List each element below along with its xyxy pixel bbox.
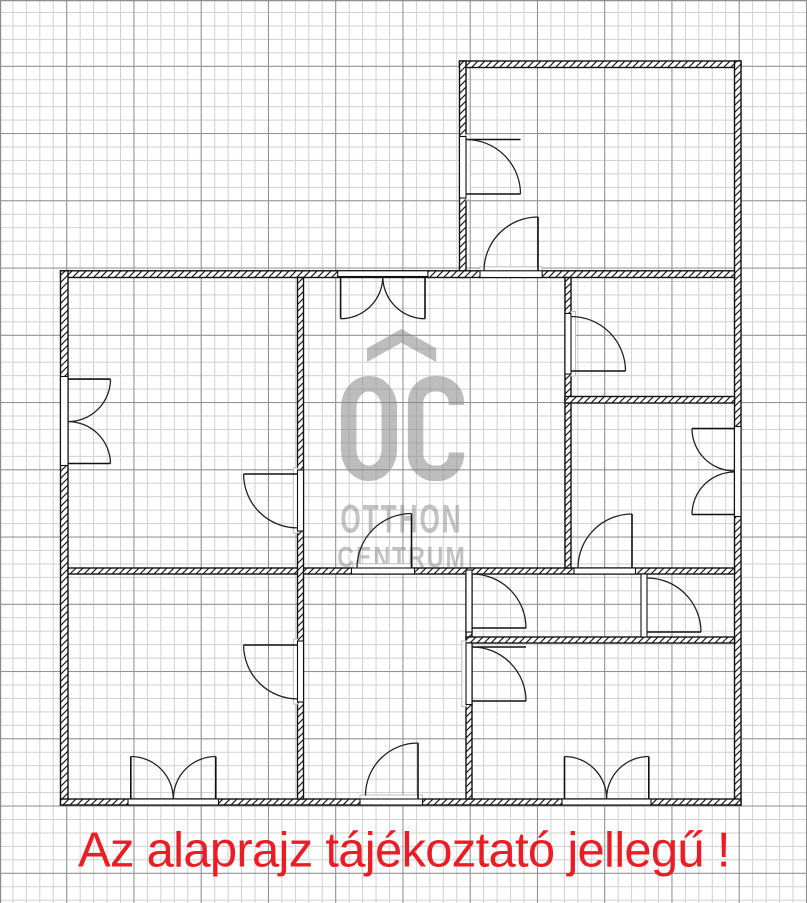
svg-text:OTTHON: OTTHON: [340, 497, 462, 542]
svg-text:Az alaprajz tájékoztató jelleg: Az alaprajz tájékoztató jellegű !: [78, 824, 730, 878]
